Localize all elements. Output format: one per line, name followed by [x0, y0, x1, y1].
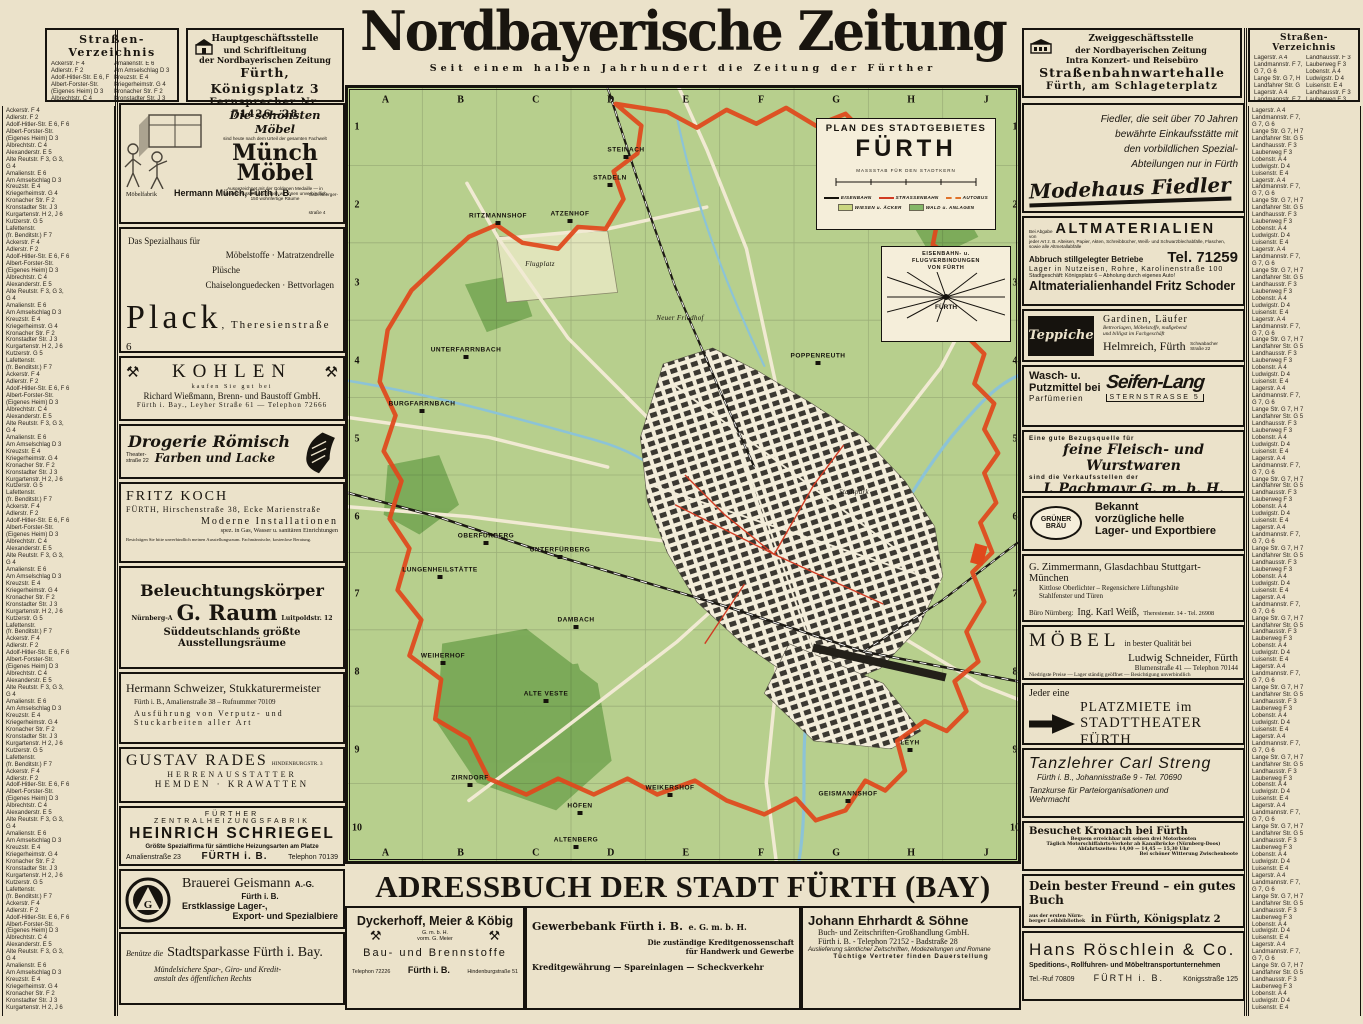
- ad-tagline: Die schönsten Möbel: [212, 108, 338, 136]
- ad-line: in bester Qualität bei: [1125, 639, 1192, 648]
- street-entry: Lange Str. G 7, H 7: [1252, 477, 1357, 484]
- map-place-label: RITZMANNSHOF: [469, 213, 527, 220]
- ad-phone: Telephon 72226: [352, 969, 390, 975]
- street-entry: Kriegerheimstr. G 4: [114, 82, 173, 89]
- ad-schoder: Bei Abgabevon ALTMATERIALIEN jeder Art z…: [1022, 216, 1245, 306]
- street-entry: Landfahrer Str. G 5: [1252, 414, 1357, 421]
- beer-oval-logo: GRÜNER BRÄU: [1030, 506, 1082, 540]
- street-entry: Lagerstr. A 4: [1252, 942, 1357, 949]
- ad-address: straße 22: [126, 458, 149, 464]
- street-entry: Landhausstr. F 3: [1252, 699, 1357, 706]
- street-entry: Lobenstr. A 4: [1252, 922, 1357, 929]
- street-entry: Landmannstr. F 7,: [1252, 741, 1357, 748]
- ad-gewerbebank: Gewerbebank Fürth i. B. e. G. m. b. H. D…: [525, 906, 801, 1010]
- street-entry: Ackerstr. F 4: [6, 636, 111, 643]
- inset-title: EISENBAHN- u.: [886, 251, 1006, 258]
- street-entry: Am Amselschlag D 3: [6, 970, 111, 977]
- ad-roeschlein: Hans Röschlein & Co. Speditions-, Rollfu…: [1022, 931, 1245, 1001]
- street-entry: G 7, G 6: [1254, 69, 1302, 76]
- street-entry: (Eigenes Heim) D 3: [6, 796, 111, 803]
- street-entry: Landhausstr. F 3: [1252, 560, 1357, 567]
- street-entry: Kurgartenstr. H 2, J 6: [6, 741, 111, 748]
- ad-line: Büro Nürnberg:: [1029, 609, 1073, 617]
- street-entry: Ludwigstr. D 4: [1252, 789, 1357, 796]
- ad-line: Kittlose Oberlichter – Regensichere Lüft…: [1039, 584, 1238, 592]
- street-entry: Luisenstr. E 4: [1252, 657, 1357, 664]
- ad-line: Erstklassige Lager-,: [182, 901, 338, 911]
- street-entry: Ludwigstr. D 4: [1252, 650, 1357, 657]
- address-book-title: ADRESSBUCH DER STADT FÜRTH (BAY): [345, 866, 1021, 906]
- map-grid-label: H: [907, 95, 915, 106]
- street-entry: (fr. Benditstr.) F 7: [6, 629, 111, 636]
- hammers-icon: ⚒: [370, 928, 382, 944]
- street-entry: Ludwigstr. D 4: [1252, 928, 1357, 935]
- street-entry: Luisenstr. E 4: [1252, 518, 1357, 525]
- street-entry: G 7, G 6: [1252, 470, 1357, 477]
- map-place-label: ALTE VESTE: [524, 691, 569, 698]
- street-entry: Landmannstr. F 7,: [1252, 324, 1357, 331]
- street-entry: G 7, G 6: [1252, 956, 1357, 963]
- ad-phone: Telephon 70139: [288, 854, 338, 861]
- inset-title: VON FÜRTH: [886, 265, 1006, 272]
- ad-brand: Stadtsparkasse Fürth i. Bay.: [167, 945, 323, 960]
- street-entry: Luisenstr. E 4: [1252, 796, 1357, 803]
- street-entry: Alexanderstr. E 5: [6, 942, 111, 949]
- ad-brand: J. Pachmayr G. m. b. H.: [1029, 481, 1238, 493]
- ad-brand: Ludwig Schneider, Fürth: [1029, 652, 1238, 664]
- street-entry: Landmannstr. F 7,: [1252, 184, 1357, 191]
- street-entry: Alte Reutstr. F 3, G 3,: [6, 421, 111, 428]
- legend-label: AUTOBUS: [963, 195, 988, 200]
- ad-line: Bau- und Brennstoffe: [352, 947, 518, 959]
- street-entry: Lagerstr. A 4: [1252, 664, 1357, 671]
- ad-item: Plüsche: [126, 263, 240, 278]
- ad-line: Stahlfenster und Türen: [1039, 592, 1238, 600]
- street-entry: Kriegerheimstr. G 4: [6, 852, 111, 859]
- street-entry: Albert-Forster-Str.: [51, 82, 110, 89]
- ad-brand: Altmaterialienhandel Fritz Schoder: [1029, 279, 1238, 293]
- street-entry: Ludwigstr. D 4: [1252, 442, 1357, 449]
- street-entry: Lagerstr. A 4: [1252, 595, 1357, 602]
- street-entry: Landfahrer Str. G 5: [1252, 692, 1357, 699]
- map-grid-label: 3: [1013, 277, 1018, 288]
- street-entry: Lange Str. G 7, H 7: [1254, 76, 1302, 83]
- divider-line: [115, 28, 118, 1016]
- ad-line: Export- und Spezialbiere: [182, 911, 338, 921]
- street-entry: Amalienstr. E 6: [6, 963, 111, 970]
- street-entry: Ackerstr. F 4: [6, 240, 111, 247]
- street-entry: Kutzerstr. G 5: [6, 483, 111, 490]
- street-entry: Landmannstr. F 7,: [1252, 880, 1357, 887]
- map-grid-label: 6: [1013, 511, 1018, 522]
- street-entry: Ackerstr. F 4: [6, 372, 111, 379]
- street-entry: G 4: [6, 560, 111, 567]
- svg-text:G: G: [144, 899, 153, 911]
- carpet-label: Teppiche: [1028, 328, 1093, 343]
- ad-line: Niedrigste Preise — Lager ständig geöffn…: [1029, 672, 1238, 678]
- ad-line: Wehrmacht: [1029, 795, 1238, 804]
- ad-footer: Möbelfabrik: [126, 191, 157, 198]
- ad-line: spez. in Gas, Wasser u. sanitären Einric…: [126, 527, 338, 534]
- street-entry: Lobenstr. A 4: [1252, 574, 1357, 581]
- ad-address: HINDENBURGSTR. 3: [272, 761, 323, 767]
- hammers-icon: ⚒: [325, 363, 338, 382]
- street-entry: Albert-Forster-Str.: [6, 393, 111, 400]
- inset-center-label: FÜRTH: [935, 302, 957, 311]
- ad-person: Ing. Karl Weiß,: [1077, 607, 1139, 618]
- map-grid-label: 9: [355, 745, 360, 756]
- building-icon: [194, 38, 214, 60]
- street-entry: Lafettenstr.: [6, 623, 111, 630]
- ad-kohlen: ⚒ KOHLEN ⚒ kaufen Sie gut bei Richard Wi…: [119, 356, 345, 421]
- street-entry: Kurgartenstr. H 2, J 6: [6, 1005, 111, 1012]
- ad-line: Moderne Installationen: [126, 516, 338, 527]
- street-entry: Lagerstr. A 4: [1252, 317, 1357, 324]
- ad-ehrhardt: Johann Ehrhardt & Söhne Buch- und Zeitsc…: [801, 906, 1021, 1010]
- map-grid-label: 2: [1013, 199, 1018, 210]
- street-entry: Albrechtstr. C 4: [6, 539, 111, 546]
- ad-address: Hindenburgstraße 51: [467, 969, 518, 975]
- ad-line: Bei schöner Witterung Zwischenboote: [1029, 852, 1238, 857]
- street-entry: Landfahrer Str. G 5: [1252, 553, 1357, 560]
- hand-icon: [299, 429, 339, 475]
- street-entry: Alexanderstr. E 5: [6, 546, 111, 553]
- street-entry: Landhausstr. F 3: [1252, 282, 1357, 289]
- ad-geismann: G Brauerei Geismann A.-G. Fürth i. B. Er…: [119, 869, 345, 929]
- ad-brand: Modehaus Fiedler: [1029, 172, 1232, 207]
- map-grid-label: 10: [352, 823, 362, 834]
- map-place-label: BURGFARRNBACH: [389, 401, 456, 408]
- street-entry: Lauberweg F 3: [1252, 706, 1357, 713]
- street-entry: Luisenstr. E 4: [1252, 171, 1357, 178]
- street-entry: Luisenstr. E 4: [1252, 310, 1357, 317]
- village-mark: [544, 699, 549, 703]
- street-entry: Landhausstr. F 3: [1252, 212, 1357, 219]
- ad-brand: Gewerbebank Fürth i. B.: [532, 920, 683, 933]
- street-entry: Alte Reutstr. F 3, G 3,: [6, 685, 111, 692]
- street-entry: Kutzerstr. G 5: [6, 351, 111, 358]
- street-entry: Kreuzstr. E 4: [6, 713, 111, 720]
- street-entry: Landhausstr. F 3: [1252, 769, 1357, 776]
- street-entry: Kronacher Str. F 2: [6, 198, 111, 205]
- map-grid-label: 9: [1013, 745, 1018, 756]
- ad-line: Parfümerien: [1029, 394, 1101, 403]
- ad-line: Farben und Lacke: [155, 451, 275, 465]
- newspaper-map-page: Nordbayerische Zeitung Seit einem halben…: [0, 0, 1363, 1024]
- ad-city: FÜRTH i. B.: [1094, 973, 1164, 983]
- street-entry: Albrechtstr. C 4: [6, 803, 111, 810]
- street-entry: Ackerstr. F 4: [6, 769, 111, 776]
- street-entry: Kutzerstr. G 5: [6, 616, 111, 623]
- ad-helmreich: Teppiche Gardinen, Läufer Bettvorlagen, …: [1022, 309, 1245, 362]
- street-entry: Kronstadter Str. J 3: [6, 337, 111, 344]
- ad-schriegel: FÜRTHER ZENTRALHEIZUNGSFABRIK HEINRICH S…: [119, 806, 345, 866]
- map-grid-label: 7: [355, 589, 360, 600]
- ad-line: Lager- und Exportbiere: [1095, 525, 1238, 537]
- map-place-label: DAMBACH: [557, 617, 594, 624]
- ad-line: anstalt des öffentlichen Rechts: [154, 974, 338, 983]
- street-entry: Kurgartenstr. H 2, J 6: [6, 477, 111, 484]
- street-entry: Landfahrer Str. G 5: [1252, 901, 1357, 908]
- street-entry: Alexanderstr. E 5: [6, 414, 111, 421]
- ad-line: Fürth i. B., Johannisstraße 9 - Tel. 706…: [1037, 773, 1238, 782]
- street-entry: Landfahrer Str. G 5: [1252, 275, 1357, 282]
- street-entry: Landhausstr. F 3: [1252, 421, 1357, 428]
- street-entry: Lauberweg F 3: [1252, 219, 1357, 226]
- page-edge-shadow: [1343, 0, 1363, 1024]
- ad-line: Speditions-, Rollfuhren- und Möbeltransp…: [1029, 962, 1238, 969]
- branch-office-line: Intra Konzert- und Reisebüro: [1028, 55, 1236, 65]
- street-entry: Albrechtstr. C 4: [6, 935, 111, 942]
- street-entry: Lange Str. G 7, H 7: [1252, 407, 1357, 414]
- ad-title: Beleuchtungskörper: [126, 581, 338, 600]
- map-place-label: WEIKERSHOF: [645, 785, 694, 792]
- street-entry: Lauberweg F 3: [1252, 984, 1357, 991]
- street-entry: (Eigenes Heim) D 3: [6, 532, 111, 539]
- street-entry: Amalienstr. E 6: [6, 699, 111, 706]
- tram-legend-swatch: [879, 197, 894, 199]
- ad-brand: GUSTAV RADES: [126, 752, 268, 769]
- street-entry: Luisenstr. E 4: [1252, 866, 1357, 873]
- street-entry: Albrechtstr. C 4: [6, 407, 111, 414]
- street-entry: Kreuzstr. E 4: [6, 581, 111, 588]
- village-mark: [464, 355, 469, 359]
- street-entry: G 4: [6, 824, 111, 831]
- street-entry: Lobenstr. A 4: [1252, 157, 1357, 164]
- street-entry: Luisenstr. E 4: [1252, 449, 1357, 456]
- street-entry: Adlerstr. F 2: [6, 247, 111, 254]
- street-entry: Landfahrer Str. G 5: [1252, 831, 1357, 838]
- brewery-logo: G: [125, 877, 171, 923]
- ad-address: Amalienstraße 23: [126, 854, 181, 861]
- street-entry: Lagerstr. A 4: [1252, 108, 1357, 115]
- street-entry: Ludwigstr. D 4: [1252, 303, 1357, 310]
- village-mark: [668, 793, 673, 797]
- ad-footer: straße 4: [309, 210, 326, 215]
- street-entry: Lange Str. G 7, H 7: [1252, 616, 1357, 623]
- map-grid-label: E: [683, 848, 690, 859]
- street-entry: Lagerstr. A 4: [1252, 456, 1357, 463]
- map-grid-label: 1: [355, 122, 360, 133]
- ad-line: Tanzkurse für Parteiorganisationen und: [1029, 786, 1238, 795]
- street-entry: Landfahrer Str. G 5: [1254, 83, 1302, 90]
- ad-line: Fürth i. B., Amalienstraße 38 – Rufnumme…: [134, 698, 338, 706]
- street-entry: Lafettenstr.: [6, 490, 111, 497]
- ad-line: bewährte Einkaufsstätte mit: [1029, 127, 1238, 142]
- street-entry: Ludwigstr. D 4: [1252, 581, 1357, 588]
- map-place-label: POPPENREUTH: [791, 353, 846, 360]
- ad-zimmermann: G. Zimmermann, Glasdachbau Stuttgart-Mün…: [1022, 554, 1245, 622]
- map-place-label: Flugplatz: [525, 260, 555, 268]
- map-place-label: UNTERFARRNBACH: [431, 347, 502, 354]
- ad-rades: GUSTAV RADES HINDENBURGSTR. 3 HERRENAUSS…: [119, 747, 345, 803]
- street-entry: Landmannstr. F 7,: [1252, 393, 1357, 400]
- street-entry: Lange Str. G 7, H 7: [1252, 755, 1357, 762]
- ad-schneider-moebel: MÖBEL in bester Qualität bei Ludwig Schn…: [1022, 625, 1245, 680]
- map-grid-label: C: [532, 95, 539, 106]
- street-entry: Alexanderstr. E 5: [6, 810, 111, 817]
- street-entry: Lange Str. G 7, H 7: [1252, 198, 1357, 205]
- street-entry: Lobenstr. A 4: [1252, 852, 1357, 859]
- street-entry: Albrechtstr. C 4: [6, 143, 111, 150]
- street-entry: Landfahrer Str. G 5: [1252, 762, 1357, 769]
- street-entry: Lange Str. G 7, H 7: [1252, 337, 1357, 344]
- street-entry: Ludwigstr. D 4: [1252, 164, 1357, 171]
- ad-line: Lager in Nutzeisen, Rohre, Karolinenstra…: [1029, 266, 1238, 273]
- street-entry: Lauberweg F 3: [1252, 776, 1357, 783]
- carpet-image: Teppiche: [1028, 316, 1094, 356]
- ad-title: Dein bester Freund – ein gutes Buch: [1029, 879, 1238, 907]
- map-grid-label: 6: [355, 511, 360, 522]
- street-entry: G 4: [6, 692, 111, 699]
- ad-line: HEMDEN · KRAWATTEN: [126, 779, 338, 789]
- street-entry: Amalienstr. E 6: [6, 567, 111, 574]
- ad-line: den vorbildlichen Spezial-: [1029, 142, 1238, 157]
- map-place-label: UNTERFÜRBERG: [530, 547, 591, 554]
- village-mark: [574, 625, 579, 629]
- street-index-box-left: Straßen-Verzeichnis Ackerstr. F 4Adlerst…: [45, 28, 179, 102]
- map-grid-label: J: [984, 848, 989, 859]
- map-grid-label: A: [382, 848, 389, 859]
- ad-line: für Handwerk und Gewerbe: [532, 947, 794, 956]
- street-entry: Alte Reutstr. F 3, G 3,: [6, 289, 111, 296]
- ad-line: Richard Wießmann, Brenn- und Baustoff Gm…: [126, 391, 338, 401]
- street-entry: Ludwigstr. D 4: [1252, 372, 1357, 379]
- street-entry: Alexanderstr. E 5: [6, 282, 111, 289]
- hammers-icon: ⚒: [488, 928, 500, 944]
- street-entry: Albert-Forster-Str.: [6, 129, 111, 136]
- map-grid-label: D: [607, 848, 614, 859]
- ad-drogerie-roemisch: Drogerie Römisch Theater-straße 22 Farbe…: [119, 424, 345, 479]
- street-entry: Landhausstr. F 3: [1252, 490, 1357, 497]
- branch-office-line: der Nordbayerischen Zeitung: [1028, 45, 1236, 55]
- ad-over: FÜRTHER ZENTRALHEIZUNGSFABRIK: [126, 811, 338, 825]
- ad-brand: G. Raum: [177, 600, 278, 625]
- street-entry: Amalienstr. E 6: [6, 303, 111, 310]
- ad-suffix: e. G. m. b. H.: [688, 922, 746, 932]
- street-entry: (Eigenes Heim) D 3: [51, 89, 110, 96]
- ad-city: Fürth i. B.: [182, 892, 338, 901]
- hammers-icon: ⚒: [126, 363, 139, 382]
- street-entry: Kreuzstr. E 4: [6, 845, 111, 852]
- street-entry: Adolf-Hitler-Str. E 6, F 6: [6, 122, 111, 129]
- street-entry: Lobenstr. A 4: [1252, 435, 1357, 442]
- street-entry: Landfahrer Str. G 5: [1252, 136, 1357, 143]
- map-scale-label: MASSSTAB FÜR DEN STADTKERN: [821, 168, 991, 173]
- street-entry: Kronstadter Str. J 3: [6, 205, 111, 212]
- legend-label: WIESEN u. ÄCKER: [855, 205, 902, 210]
- ad-raum-beleuchtung: Beleuchtungskörper Nürnberg-A G. Raum Lu…: [119, 566, 345, 669]
- scale-bar: [831, 177, 981, 186]
- street-entry: Amalienstr. E 6: [6, 435, 111, 442]
- ad-item: Möbelstoffe · Matratzendrelle: [126, 248, 334, 263]
- street-entry: G 7, G 6: [1252, 887, 1357, 894]
- ad-item: Chaiselonguedecken · Bettvorlagen: [126, 278, 334, 293]
- street-entry: Kreuzstr. E 4: [6, 449, 111, 456]
- street-entry: G 7, G 6: [1252, 678, 1357, 685]
- ad-suffix: A.-G.: [295, 880, 314, 889]
- street-entry: Luisenstr. E 4: [1252, 1005, 1357, 1012]
- ad-title: ALTMATERIALIEN: [1056, 221, 1216, 237]
- street-entry: Kronstadter Str. J 3: [6, 602, 111, 609]
- ad-line: Tüchtige Vertreter finden Dauerstellung: [808, 953, 1014, 960]
- map-title: PLAN DES STADTGEBIETES: [821, 123, 991, 134]
- ad-line: FÜRTH, Hirschenstraße 38, Ecke Marienstr…: [126, 505, 338, 514]
- map-grid-label: 3: [355, 277, 360, 288]
- map-place-label: STADELN: [593, 175, 627, 182]
- street-entry: Alexanderstr. E 5: [6, 678, 111, 685]
- street-entry: Landmannstr. F 7,: [1252, 671, 1357, 678]
- street-entry: (fr. Benditstr.) F 7: [6, 762, 111, 769]
- street-entry: Kurgartenstr. H 2, J 6: [6, 873, 111, 880]
- map-place-label: ALTENBERG: [554, 837, 598, 844]
- street-entry: Am Amselschlag D 3: [6, 838, 111, 845]
- village-mark: [574, 845, 579, 849]
- ad-pre: Benütze die: [126, 949, 163, 958]
- arrow-icon: [1029, 711, 1075, 737]
- street-entry: Ludwigstr. D 4: [1252, 998, 1357, 1005]
- ad-line: Bekannt: [1095, 501, 1238, 513]
- ad-brand: Tanzlehrer Carl Streng: [1029, 755, 1238, 773]
- street-entry: Alte Reutstr. F 3, G 3,: [6, 553, 111, 560]
- street-entry: Luisenstr. E 4: [1252, 240, 1357, 247]
- ad-address: Straße 22: [1190, 346, 1210, 351]
- street-entry: (Eigenes Heim) D 3: [6, 928, 111, 935]
- ad-brand: G. Zimmermann, Glasdachbau Stuttgart-Mün…: [1029, 562, 1238, 584]
- ad-line: Gardinen, Läufer: [1103, 314, 1238, 325]
- street-entry: Lagerstr. A 4: [1252, 247, 1357, 254]
- street-entry: (fr. Benditstr.) F 7: [6, 233, 111, 240]
- street-entry: Lafettenstr.: [6, 226, 111, 233]
- branch-office-line: Zweiggeschäftsstelle: [1028, 34, 1236, 45]
- street-entry: Amalienstr. E 6: [6, 831, 111, 838]
- street-entry: Lobenstr. A 4: [1252, 504, 1357, 511]
- village-mark: [846, 799, 851, 803]
- street-entry: Lagerstr. A 4: [1254, 55, 1302, 62]
- map-place-label: ZIRNDORF: [451, 775, 489, 782]
- ad-brand: Dyckerhoff, Meier & Köbig: [352, 914, 518, 928]
- street-entry: (fr. Benditstr.) F 7: [6, 365, 111, 372]
- street-entry: Adolf-Hitler-Str. E 6, F 6: [6, 254, 111, 261]
- street-entry: Ackerstr. F 4: [6, 901, 111, 908]
- map-grid-label: 10: [1010, 823, 1020, 834]
- street-entry: Landhausstr. F 3: [1252, 143, 1357, 150]
- village-mark: [624, 155, 629, 159]
- street-entry: Kurgartenstr. H 2, J 6: [6, 212, 111, 219]
- ad-streng: Tanzlehrer Carl Streng Fürth i. B., Joha…: [1022, 748, 1245, 818]
- street-entry: Ackerstr. F 4: [6, 504, 111, 511]
- ad-pachmayr: Eine gute Bezugsquelle für feine Fleisch…: [1022, 430, 1245, 493]
- street-entry: Albert-Forster-Str.: [6, 525, 111, 532]
- map-place-label: ATZENHOF: [551, 211, 590, 218]
- street-entry: Adolf-Hitler-Str. E 6, F 6: [51, 75, 110, 82]
- ad-muench-moebel: Die schönsten Möbel sind heute nach dem …: [119, 103, 345, 224]
- ad-line: Süddeutschlands größte: [126, 627, 338, 638]
- forest-legend-swatch: [909, 204, 924, 211]
- street-entry: (Eigenes Heim) D 3: [6, 268, 111, 275]
- building-icon: [1030, 38, 1052, 59]
- legend-label: EISENBAHN: [841, 195, 872, 200]
- street-entry: Lauberweg F 3: [1252, 636, 1357, 643]
- ad-address: Königsstraße 125: [1183, 976, 1238, 983]
- ad-line: Besichtigen Sie bitte unverbindlich mein…: [126, 537, 338, 542]
- logo-text: BRÄU: [1046, 523, 1066, 530]
- ad-line: Auslieferung sämtlicher Zeitschriften, M…: [808, 946, 1014, 953]
- street-entry: Ludwigstr. D 4: [1252, 233, 1357, 240]
- street-entry: Lobenstr. A 4: [1252, 782, 1357, 789]
- ad-line: Abteilungen nur in Fürth: [1029, 157, 1238, 172]
- street-entry: Kronacher Str. F 2: [6, 331, 111, 338]
